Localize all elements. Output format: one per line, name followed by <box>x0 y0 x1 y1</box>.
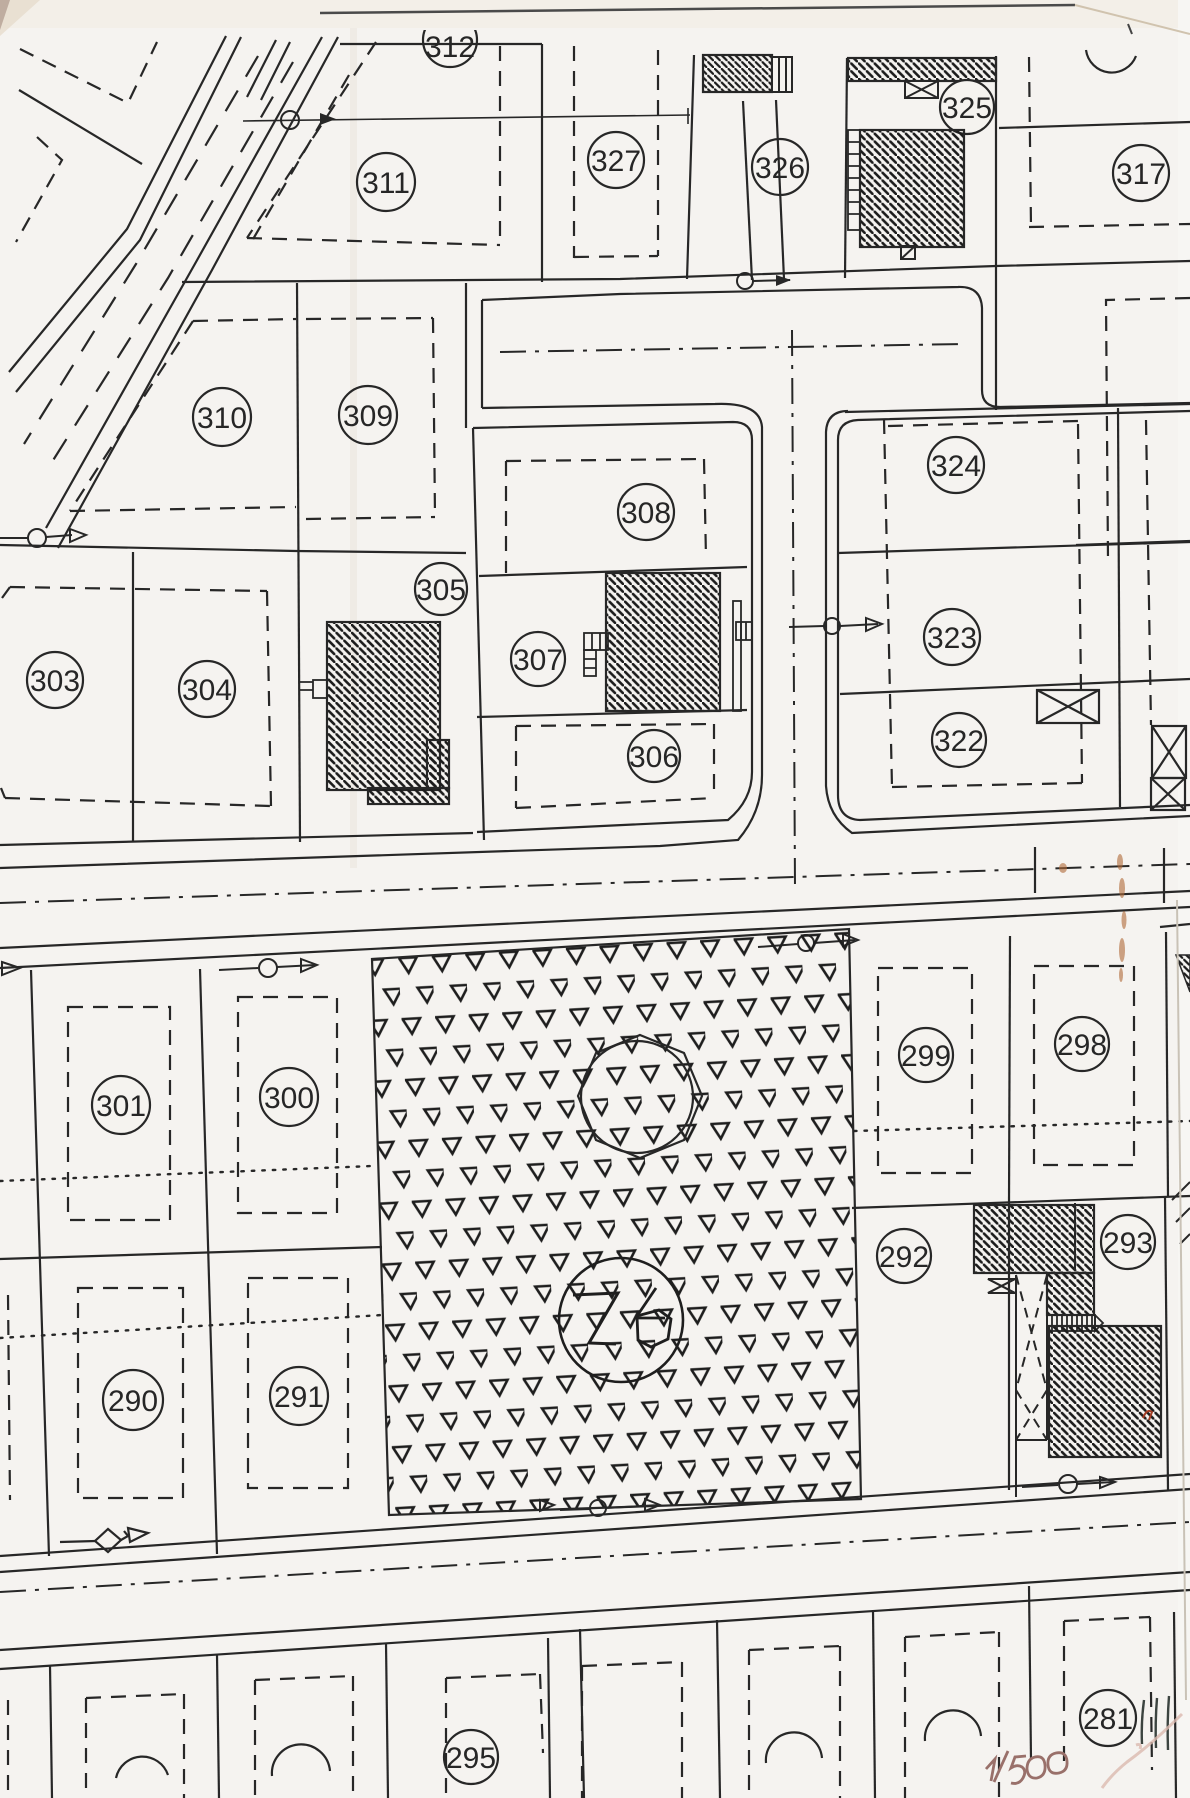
svg-text:317: 317 <box>1116 158 1166 191</box>
svg-text:325: 325 <box>942 92 992 125</box>
svg-text:293: 293 <box>1103 1227 1153 1260</box>
svg-text:290: 290 <box>108 1385 158 1418</box>
svg-text:306: 306 <box>629 741 679 774</box>
svg-text:326: 326 <box>755 152 805 185</box>
svg-text:300: 300 <box>264 1082 314 1115</box>
svg-text:307: 307 <box>513 644 563 677</box>
svg-text:304: 304 <box>182 674 232 707</box>
svg-text:323: 323 <box>927 622 977 655</box>
svg-text:305: 305 <box>416 574 466 607</box>
svg-text:327: 327 <box>591 145 641 178</box>
svg-text:303: 303 <box>30 665 80 698</box>
svg-text:308: 308 <box>621 497 671 530</box>
svg-text:324: 324 <box>931 450 981 483</box>
svg-text:312: 312 <box>425 31 475 64</box>
svg-text:292: 292 <box>879 1241 929 1274</box>
svg-text:311: 311 <box>362 167 410 200</box>
svg-text:291: 291 <box>274 1381 324 1414</box>
svg-text:309: 309 <box>343 400 393 433</box>
svg-text:310: 310 <box>197 402 247 435</box>
svg-text:322: 322 <box>934 725 984 758</box>
svg-text:281: 281 <box>1083 1703 1133 1736</box>
svg-text:298: 298 <box>1057 1029 1107 1062</box>
svg-text:295: 295 <box>446 1742 496 1775</box>
svg-text:301: 301 <box>96 1090 146 1123</box>
svg-text:299: 299 <box>901 1040 951 1073</box>
